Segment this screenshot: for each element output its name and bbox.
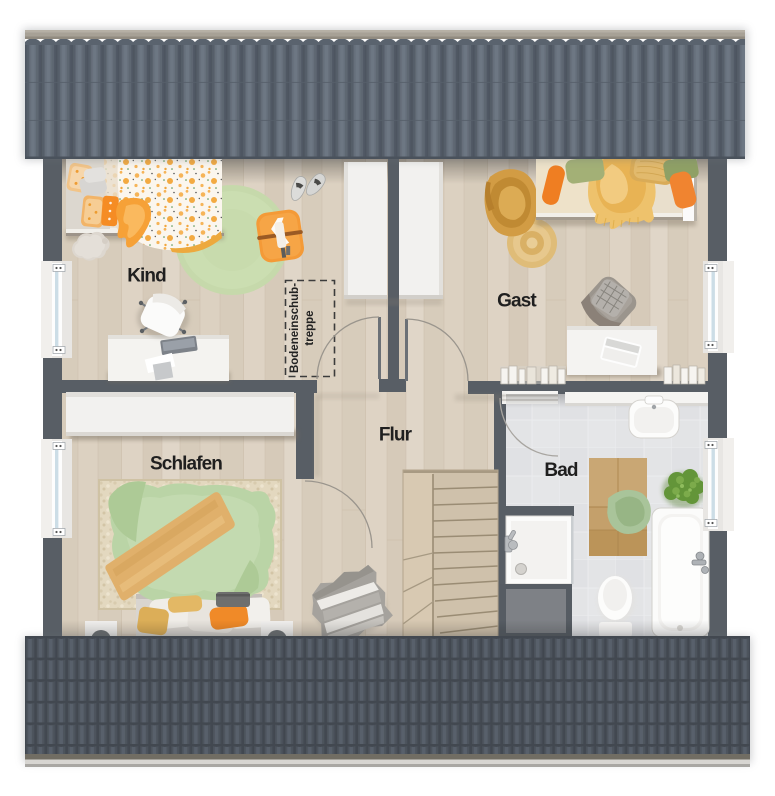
svg-text:Bad: Bad <box>544 460 577 481</box>
svg-text:treppe: treppe <box>304 310 316 345</box>
svg-text:Kind: Kind <box>127 266 166 287</box>
svg-text:Schlafen: Schlafen <box>150 454 222 475</box>
svg-text:Gast: Gast <box>497 291 537 312</box>
svg-text:Flur: Flur <box>379 425 413 446</box>
svg-text:Bodeneinschub-: Bodeneinschub- <box>289 283 301 373</box>
